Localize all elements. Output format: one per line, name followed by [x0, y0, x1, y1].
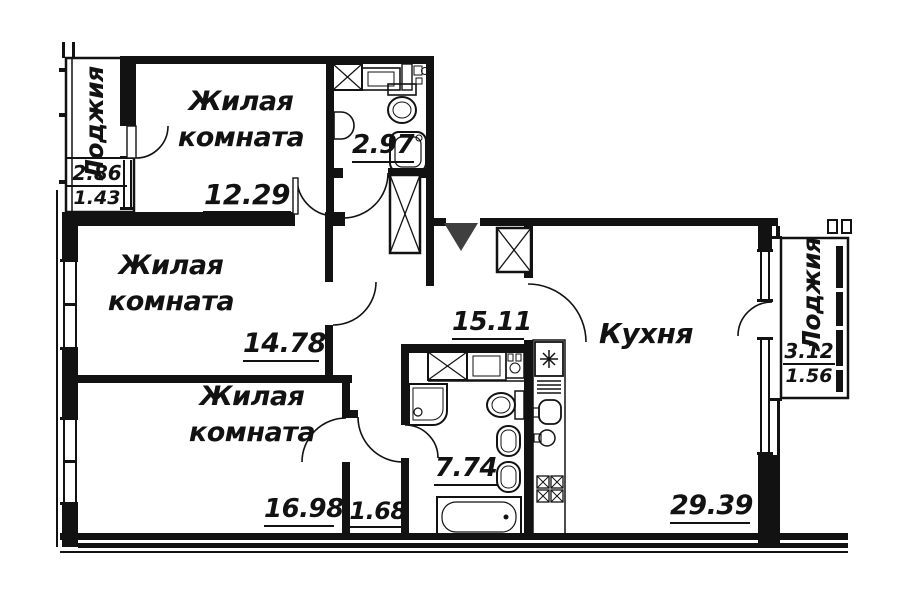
room-living1-title-line2: комната — [158, 124, 324, 152]
corridor-area: 1.68 — [348, 499, 408, 528]
counter-icon — [533, 340, 565, 535]
entrance-arrow-icon — [444, 223, 478, 251]
kitchen-title: Кухня — [588, 319, 704, 348]
floor-plan: Жилая комната 12.29 Жилая комната 14.78 … — [0, 0, 900, 600]
door-leaf — [127, 126, 136, 158]
bathroom-large-area: 7.74 — [434, 455, 498, 486]
loggia-left-area-counted: 1.43 — [67, 187, 127, 209]
door-arc-bathroom-small — [343, 173, 388, 218]
kitchen-sink-icon — [533, 400, 561, 424]
fridge-icon — [535, 342, 563, 376]
stove-icon — [537, 476, 563, 502]
loggia-left-areas: 2.86 1.43 — [67, 157, 127, 209]
room-living3-title-line1: Жилая — [168, 383, 336, 411]
kitchen-area: 29.39 — [670, 492, 750, 524]
door-arc-kitchen — [528, 284, 586, 342]
door-leaf — [293, 178, 298, 214]
sink-icon — [334, 112, 354, 139]
toilet-icon — [487, 391, 524, 419]
tap-icon — [534, 430, 555, 446]
door-arc-loggia-right — [738, 302, 772, 336]
kitchen-fixtures — [533, 340, 565, 535]
bathtub-icon — [437, 497, 521, 537]
room-living1-title-line1: Жилая — [158, 88, 324, 116]
loggia-left-area-total: 2.86 — [67, 161, 127, 187]
bathroom-small-area: 2.97 — [352, 132, 414, 163]
room-living1-area: 12.29 — [203, 180, 291, 213]
hallway-area: 15.11 — [452, 309, 524, 340]
loggia-right-areas: 3.12 1.56 — [783, 339, 835, 387]
sink-icon — [497, 426, 520, 456]
vent-grille-icon — [537, 381, 561, 393]
room-living3-title-line2: комната — [168, 419, 336, 447]
room-living3-area: 16.98 — [264, 496, 334, 527]
faucet-icon — [414, 66, 422, 75]
room-living2-area: 14.78 — [243, 330, 319, 362]
door-arc-bathroom-large — [405, 425, 438, 458]
room-living2-title-line1: Жилая — [88, 252, 254, 280]
loggia-right-area-counted: 1.56 — [783, 365, 835, 387]
door-arc-living2 — [333, 282, 376, 325]
door-arc-corridor — [358, 417, 403, 462]
loggia-right-area-total: 3.12 — [783, 339, 835, 365]
room-living2-title-line2: комната — [88, 288, 254, 316]
shower-icon — [409, 384, 447, 425]
sink-icon — [497, 462, 520, 492]
